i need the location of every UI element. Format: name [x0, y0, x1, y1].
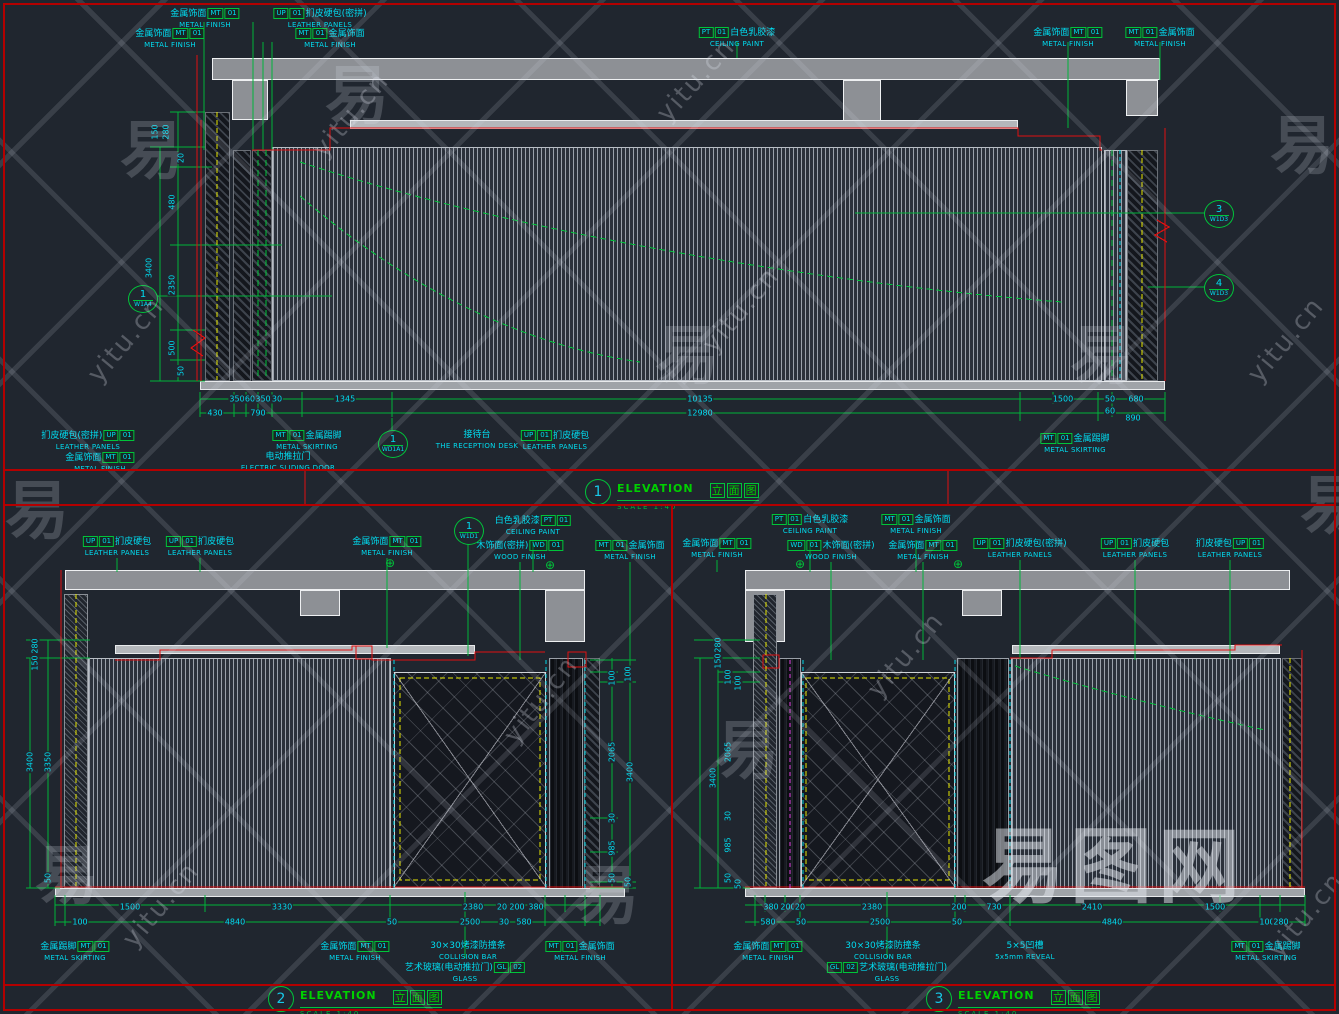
material-tag-zh: 白色乳胶漆	[803, 515, 848, 525]
material-tag-zh: 金属饰面	[65, 453, 101, 463]
material-tag-codes: MT01金属踢脚	[272, 430, 341, 441]
material-tag-en: 5x5mm REVEAL	[995, 952, 1055, 962]
material-tag-zh: 30×30烤漆防撞条	[430, 941, 505, 951]
material-tag: PT01白色乳胶漆CEILING PAINT	[699, 27, 775, 49]
dimension-text: 20	[177, 152, 186, 164]
material-code-box: UP	[521, 430, 536, 441]
dimension-text: 10135	[686, 395, 713, 404]
material-code-box: MT	[881, 514, 897, 525]
material-tag-zh: 艺术玻璃(电动推拉门)	[859, 963, 947, 973]
material-tag-zh: 金属饰面	[888, 541, 924, 551]
material-tag-zh: 30×30烤漆防撞条	[845, 941, 920, 951]
dimension-text: 2380	[861, 903, 883, 912]
material-code-box: UP	[83, 536, 98, 547]
watermark-site-text: yitu.cn	[498, 650, 585, 749]
view-title-zh-char: 图	[744, 483, 759, 498]
material-tag-en: METAL FINISH	[545, 953, 614, 963]
detail-callout: 3W1D3	[1204, 200, 1234, 228]
dimension-text: 4840	[1101, 918, 1123, 927]
material-code-box: MT	[770, 941, 786, 952]
material-tag-codes: 金属饰面MT01	[1033, 27, 1102, 38]
material-tag-en: LEATHER PANELS	[166, 548, 234, 558]
material-tag-codes: MT01金属饰面	[545, 941, 614, 952]
material-code-box: 01	[990, 538, 1005, 549]
callout-number: 4	[1209, 278, 1229, 290]
view-number-circle: 2	[268, 986, 294, 1012]
material-tag-en: METAL FINISH	[888, 552, 957, 562]
material-code-box: UP	[166, 536, 181, 547]
material-tag-zh: 金属饰面	[579, 942, 615, 952]
material-tag: 扪皮硬包UP01LEATHER PANELS	[1196, 538, 1264, 560]
material-tag: 金属饰面MT01METAL FINISH	[733, 941, 802, 963]
material-tag-codes: MT01金属饰面	[1125, 27, 1194, 38]
material-tag-zh: 金属饰面	[629, 541, 665, 551]
material-tag-zh: 扪皮硬包	[198, 537, 234, 547]
material-code-box: MT	[389, 536, 405, 547]
view-title-zh-char: 面	[1068, 990, 1083, 1005]
detail-callout: 1W1D1	[454, 517, 484, 545]
material-tag-codes: UP01扪皮硬包	[1101, 538, 1169, 549]
material-tag-en: COLLISION BAR	[845, 952, 920, 962]
material-tag-en: WOOD FINISH	[476, 552, 563, 562]
view-title-zh-char: 面	[727, 483, 742, 498]
material-tag-en: METAL FINISH	[135, 40, 204, 50]
material-tag-codes: 艺术玻璃(电动推拉门)GL02	[405, 962, 525, 973]
detail-callout: 4W1D3	[1204, 274, 1234, 302]
material-code-box: 01	[1249, 941, 1264, 952]
material-code-box: 01	[899, 514, 914, 525]
callout-ref: WD1A1	[382, 446, 404, 454]
material-code-box: 01	[95, 941, 110, 952]
material-tag-codes: MT01金属踢脚	[1040, 433, 1109, 444]
dimension-text: 60	[1104, 407, 1116, 416]
material-tag-codes: MT01金属饰面	[295, 28, 364, 39]
material-code-box: PT	[772, 514, 787, 525]
material-tag-zh: 金属饰面	[135, 29, 171, 39]
dimension-text: 30	[498, 918, 510, 927]
material-tag-zh: 扪皮硬包	[553, 431, 589, 441]
material-tag-zh: 金属饰面	[352, 537, 388, 547]
material-tag: 金属饰面MT01METAL FINISH	[682, 538, 751, 560]
dimension-text: 985	[608, 839, 617, 856]
dimension-text: 30	[271, 395, 283, 404]
material-tag-codes: UP01扪皮硬包(密拼)	[973, 538, 1066, 549]
material-code-box: 01	[182, 536, 197, 547]
material-tag-en: METAL FINISH	[1033, 39, 1102, 49]
material-tag-codes: UP01扪皮硬包(密拼)	[273, 8, 366, 19]
material-tag-en: ELECTRIC SLIDING DOOR	[241, 463, 335, 473]
material-code-box: 01	[537, 430, 552, 441]
material-code-box: 01	[290, 430, 305, 441]
material-tag: 金属踢脚MT01METAL SKIRTING	[40, 941, 109, 963]
material-code-box: MT	[1231, 941, 1247, 952]
material-tag: 金属饰面MT01METAL FINISH	[888, 540, 957, 562]
material-tag-codes: MT01金属饰面	[595, 540, 664, 551]
callout-ref: W1A4	[134, 301, 152, 309]
dimension-text: 380	[762, 903, 779, 912]
material-tag-codes: 金属饰面MT01	[170, 8, 239, 19]
dimension-text: 3400	[145, 257, 154, 279]
material-tag-codes: PT01白色乳胶漆	[699, 27, 775, 38]
material-code-box: GL	[494, 962, 509, 973]
divider-h2	[4, 504, 1335, 506]
material-code-box: MT	[925, 540, 941, 551]
material-tag-codes: 扪皮硬包UP01	[1196, 538, 1264, 549]
material-tag-en: METAL FINISH	[595, 552, 664, 562]
dimension-text: 3400	[626, 761, 635, 783]
dimension-text: 200	[508, 903, 525, 912]
material-tag-en: LEATHER PANELS	[521, 442, 589, 452]
detail-callout: 1WD1A1	[378, 430, 408, 458]
material-tag: MT01金属踢脚METAL SKIRTING	[1231, 941, 1300, 963]
dimension-text: 580	[515, 918, 532, 927]
annotations-layer: 金属饰面MT01METAL FINISH金属饰面MT01METAL FINISH…	[0, 0, 1339, 1014]
material-tag-en: METAL SKIRTING	[272, 442, 341, 452]
material-tag: UP01扪皮硬包LEATHER PANELS	[1101, 538, 1169, 560]
material-tag: 金属饰面MT01METAL FINISH	[135, 28, 204, 50]
material-tag-codes: 白色乳胶漆PT01	[495, 515, 571, 526]
material-code-box: 01	[788, 941, 803, 952]
watermark-glyph: 易	[1070, 305, 1134, 397]
material-code-box: 01	[714, 27, 729, 38]
material-tag-zh: 木饰面(密拼)	[476, 541, 528, 551]
material-code-box: MT	[102, 452, 118, 463]
watermark-site-text: yitu.cn	[307, 66, 396, 164]
dimension-text: 100	[624, 665, 633, 682]
material-tag-codes: 金属饰面MT01	[733, 941, 802, 952]
material-code-box: MT	[1070, 27, 1086, 38]
material-tag-zh: 金属饰面	[733, 942, 769, 952]
material-tag-codes: PT01白色乳胶漆	[772, 514, 848, 525]
watermark-glyph: 易	[655, 305, 719, 397]
view-title-zh: 立面图	[391, 986, 442, 1005]
view-title-zh-char: 立	[1051, 990, 1066, 1005]
material-code-box: UP	[1101, 538, 1116, 549]
material-tag-en: COLLISION BAR	[430, 952, 505, 962]
dimension-text: 1500	[119, 903, 141, 912]
material-code-box: MT	[272, 430, 288, 441]
material-tag-zh: 金属饰面	[1159, 28, 1195, 38]
material-tag-zh: 金属踢脚	[1265, 942, 1301, 952]
watermark-glyph: 易	[575, 845, 639, 937]
material-tag-zh: 艺术玻璃(电动推拉门)	[405, 963, 493, 973]
dimension-text: 2500	[869, 918, 891, 927]
callout-ref: W1D1	[460, 533, 478, 541]
material-tag-codes: UP01扪皮硬包	[83, 536, 151, 547]
material-tag-zh: 金属踢脚	[306, 431, 342, 441]
cad-canvas: 金属饰面MT01METAL FINISH金属饰面MT01METAL FINISH…	[0, 0, 1339, 1014]
callout-number: 1	[459, 521, 479, 533]
material-code-box: WD	[787, 540, 805, 551]
material-tag: MT01金属饰面METAL FINISH	[545, 941, 614, 963]
material-tag-codes: WD01木饰面(密拼)	[787, 540, 874, 551]
material-tag: MT01金属饰面METAL FINISH	[881, 514, 950, 536]
view-title: 2ELEVATION立面图SCALE 1:40	[268, 986, 442, 1014]
view-title-text: ELEVATION立面图SCALE 1:40	[300, 986, 442, 1014]
material-tag: 艺术玻璃(电动推拉门)GL02GLASS	[405, 962, 525, 984]
material-tag-zh: 金属饰面	[320, 942, 356, 952]
material-tag-en: CEILING PAINT	[495, 527, 571, 537]
dimension-text: 50	[951, 918, 963, 927]
detail-callout: 1W1A4	[128, 285, 158, 313]
dimension-text: 2410	[1081, 903, 1103, 912]
dimension-text: 985	[724, 836, 733, 853]
material-tag-en: METAL FINISH	[881, 526, 950, 536]
material-tag-zh: 金属饰面	[682, 539, 718, 549]
material-tag-codes: MT01金属饰面	[881, 514, 950, 525]
material-tag-zh: 扪皮硬包(密拼)	[41, 431, 102, 441]
material-code-box: 01	[1058, 433, 1073, 444]
material-code-box: 01	[225, 8, 240, 19]
material-tag-zh: 白色乳胶漆	[730, 28, 775, 38]
material-tag-codes: 30×30烤漆防撞条	[430, 941, 505, 951]
dimension-text: 280	[162, 123, 171, 140]
dimension-text: 50	[734, 878, 743, 890]
material-code-box: UP	[273, 8, 288, 19]
view-number-circle: 1	[585, 479, 611, 505]
dimension-text: 350	[254, 395, 271, 404]
watermark-glyph: 易	[5, 460, 69, 552]
material-tag: 金属饰面MT01METAL FINISH	[170, 8, 239, 30]
material-tag-codes: 金属饰面MT01	[888, 540, 957, 551]
material-code-box: 01	[1088, 27, 1103, 38]
material-tag-en: METAL FINISH	[295, 40, 364, 50]
material-code-box: MT	[77, 941, 93, 952]
dimension-text: 730	[985, 903, 1002, 912]
view-title-zh-char: 图	[1085, 990, 1100, 1005]
dimension-text: 1345	[334, 395, 356, 404]
material-tag-en: METAL SKIRTING	[40, 953, 109, 963]
dimension-text: 3330	[271, 903, 293, 912]
dimension-text: 380	[527, 903, 544, 912]
material-tag-en: GLASS	[827, 974, 947, 984]
material-tag-en: METAL FINISH	[733, 953, 802, 963]
material-code-box: UP	[103, 430, 118, 441]
material-tag-en: METAL FINISH	[352, 548, 421, 558]
dimension-text: 3400	[709, 767, 718, 789]
dimension-text: 890	[1124, 414, 1141, 423]
material-code-box: WD	[529, 540, 547, 551]
view-title: 3ELEVATION立面图SCALE 1:40	[926, 986, 1100, 1014]
material-code-box: MT	[1040, 433, 1056, 444]
material-code-box: 01	[290, 8, 305, 19]
material-tag-codes: 金属踢脚MT01	[40, 941, 109, 952]
dimension-text: 2350	[168, 274, 177, 296]
material-code-box: 01	[120, 430, 135, 441]
material-tag-en: WOOD FINISH	[787, 552, 874, 562]
material-code-box: PT	[699, 27, 714, 38]
material-tag-zh: 扪皮硬包	[1133, 539, 1169, 549]
divider-v1	[671, 504, 673, 1010]
view-title-zh-char: 图	[427, 990, 442, 1005]
view-title-line: ELEVATION立面图	[300, 986, 442, 1008]
material-code-box: GL	[827, 962, 842, 973]
material-code-box: 01	[1249, 538, 1264, 549]
material-tag-en: LEATHER PANELS	[41, 442, 134, 452]
dimension-text: 1500	[1204, 903, 1226, 912]
view-scale: SCALE 1:40	[958, 1010, 1100, 1014]
material-tag-zh: 扪皮硬包(密拼)	[1006, 539, 1067, 549]
watermark-glyph: 易	[1270, 95, 1334, 187]
dimension-text: 200	[950, 903, 967, 912]
material-tag-en: METAL SKIRTING	[1231, 953, 1300, 963]
material-code-box: 02	[510, 962, 525, 973]
dimension-text: 150	[151, 123, 160, 140]
dimension-text: 280	[1272, 918, 1289, 927]
material-code-box: PT	[541, 515, 556, 526]
material-tag: 30×30烤漆防撞条COLLISION BAR	[430, 941, 505, 962]
material-tag-zh: 金属饰面	[1033, 28, 1069, 38]
material-tag-zh: 扪皮硬包(密拼)	[306, 9, 367, 19]
material-code-box: 01	[556, 515, 571, 526]
view-title-en: ELEVATION	[300, 989, 377, 1002]
dimension-text: 150	[714, 652, 723, 669]
material-tag-zh: 金属饰面	[170, 9, 206, 19]
material-tag: UP01扪皮硬包(密拼)LEATHER PANELS	[273, 8, 366, 30]
dimension-text: 50	[795, 918, 807, 927]
material-tag-en: THE RECEPTION DESK	[436, 441, 519, 451]
material-tag-codes: GL02艺术玻璃(电动推拉门)	[827, 962, 947, 973]
material-code-box: MT	[357, 941, 373, 952]
dimension-text: 2500	[459, 918, 481, 927]
dimension-text: 100	[608, 669, 617, 686]
material-code-box: 02	[843, 962, 858, 973]
material-tag: MT01金属踢脚METAL SKIRTING	[1040, 433, 1109, 455]
material-tag-zh: 扪皮硬包	[1196, 539, 1232, 549]
view-title-zh: 立面图	[708, 479, 759, 498]
material-code-box: 01	[943, 540, 958, 551]
material-tag-codes: 电动推拉门	[241, 452, 335, 462]
watermark-site-text: yitu.cn	[1242, 291, 1331, 389]
dimension-text: 100	[724, 668, 733, 685]
material-tag-zh: 木饰面(密拼)	[823, 541, 875, 551]
material-tag-en: METAL FINISH	[1125, 39, 1194, 49]
dimension-text: 430	[206, 409, 223, 418]
material-tag: UP01扪皮硬包LEATHER PANELS	[521, 430, 589, 452]
material-tag: 金属饰面MT01METAL FINISH	[1033, 27, 1102, 49]
material-code-box: MT	[207, 8, 223, 19]
dimension-text: 50	[386, 918, 398, 927]
material-tag-en: LEATHER PANELS	[973, 550, 1066, 560]
material-tag: MT01金属踢脚METAL SKIRTING	[272, 430, 341, 452]
material-code-box: 01	[1117, 538, 1132, 549]
view-title-zh: 立面图	[1049, 986, 1100, 1005]
material-code-box: 01	[807, 540, 822, 551]
dimension-text: 50	[1104, 395, 1116, 404]
material-tag-en: CEILING PAINT	[772, 526, 848, 536]
dimension-text: 1500	[1052, 395, 1074, 404]
material-tag-en: LEATHER PANELS	[1196, 550, 1264, 560]
material-tag: PT01白色乳胶漆CEILING PAINT	[772, 514, 848, 536]
dimension-text: 2380	[462, 903, 484, 912]
material-tag-en: CEILING PAINT	[699, 39, 775, 49]
material-tag-en: METAL FINISH	[320, 953, 389, 963]
dimension-text: 2065	[724, 741, 733, 763]
material-code-box: 01	[313, 28, 328, 39]
dimension-text: 3350	[44, 751, 53, 773]
dimension-text: 50	[724, 872, 733, 884]
dimension-text: 150	[31, 654, 40, 671]
dimension-text: 480	[168, 193, 177, 210]
material-code-box: UP	[973, 538, 988, 549]
material-tag: WD01木饰面(密拼)WOOD FINISH	[787, 540, 874, 562]
watermark-glyph: 易	[325, 45, 389, 137]
material-tag: 扪皮硬包(密拼)UP01LEATHER PANELS	[41, 430, 134, 452]
material-tag-zh: 金属饰面	[329, 29, 365, 39]
material-tag-en: METAL SKIRTING	[1040, 445, 1109, 455]
view-title-text: ELEVATION立面图SCALE 1:40	[617, 479, 759, 511]
view-title-zh-char: 面	[410, 990, 425, 1005]
dimension-text: 20	[794, 903, 806, 912]
dimension-text: 12980	[686, 409, 713, 418]
material-tag: UP01扪皮硬包LEATHER PANELS	[166, 536, 234, 558]
dimension-text: 4840	[224, 918, 246, 927]
material-code-box: 01	[549, 540, 564, 551]
material-code-box: MT	[1125, 27, 1141, 38]
dimension-text: 280	[31, 637, 40, 654]
dimension-text: 280	[714, 636, 723, 653]
material-code-box: MT	[595, 540, 611, 551]
divider-h1	[4, 469, 1335, 471]
material-tag: 木饰面(密拼)WD01WOOD FINISH	[476, 540, 563, 562]
material-code-box: 01	[563, 941, 578, 952]
material-code-box: 01	[375, 941, 390, 952]
material-tag-codes: 扪皮硬包(密拼)UP01	[41, 430, 134, 441]
material-code-box: 01	[120, 452, 135, 463]
material-tag-codes: 金属饰面MT01	[65, 452, 134, 463]
material-code-box: 01	[190, 28, 205, 39]
dimension-text: 500	[168, 339, 177, 356]
callout-number: 3	[1209, 204, 1229, 216]
dimension-text: 100	[734, 674, 743, 691]
material-tag-codes: MT01金属踢脚	[1231, 941, 1300, 952]
material-tag-zh: 金属饰面	[915, 515, 951, 525]
watermark-site-text: yitu.cn	[82, 291, 171, 389]
watermark-glyph: 易	[120, 100, 184, 192]
material-tag: MT01金属饰面METAL FINISH	[295, 28, 364, 50]
material-tag-zh: 金属踢脚	[40, 942, 76, 952]
material-tag-en: METAL FINISH	[682, 550, 751, 560]
view-title-zh-char: 立	[393, 990, 408, 1005]
callout-number: 1	[383, 434, 403, 446]
material-tag-zh: 金属踢脚	[1074, 434, 1110, 444]
material-tag: UP01扪皮硬包LEATHER PANELS	[83, 536, 151, 558]
material-code-box: 01	[99, 536, 114, 547]
material-code-box: 01	[737, 538, 752, 549]
view-title-en: ELEVATION	[958, 989, 1035, 1002]
callout-ref: W1D3	[1210, 216, 1228, 224]
material-tag: 金属饰面MT01METAL FINISH	[320, 941, 389, 963]
material-tag-codes: 5×5凹槽	[995, 941, 1055, 951]
material-code-box: 01	[407, 536, 422, 547]
material-tag: 5×5凹槽5x5mm REVEAL	[995, 941, 1055, 962]
dimension-text: 20	[496, 903, 508, 912]
callout-ref: W1D3	[1210, 290, 1228, 298]
material-tag: MT01金属饰面METAL FINISH	[595, 540, 664, 562]
material-tag-codes: UP01扪皮硬包	[166, 536, 234, 547]
material-tag: MT01金属饰面METAL FINISH	[1125, 27, 1194, 49]
view-title-zh-char: 立	[710, 483, 725, 498]
material-tag-zh: 接待台	[463, 430, 490, 440]
material-tag-codes: 接待台	[436, 430, 519, 440]
material-tag: UP01扪皮硬包(密拼)LEATHER PANELS	[973, 538, 1066, 560]
material-tag-en: LEATHER PANELS	[1101, 550, 1169, 560]
material-tag-zh: 电动推拉门	[265, 452, 310, 462]
material-tag-codes: 金属饰面MT01	[320, 941, 389, 952]
material-tag-en: LEATHER PANELS	[83, 548, 151, 558]
dimension-text: 50	[624, 876, 633, 888]
material-tag-codes: UP01扪皮硬包	[521, 430, 589, 441]
